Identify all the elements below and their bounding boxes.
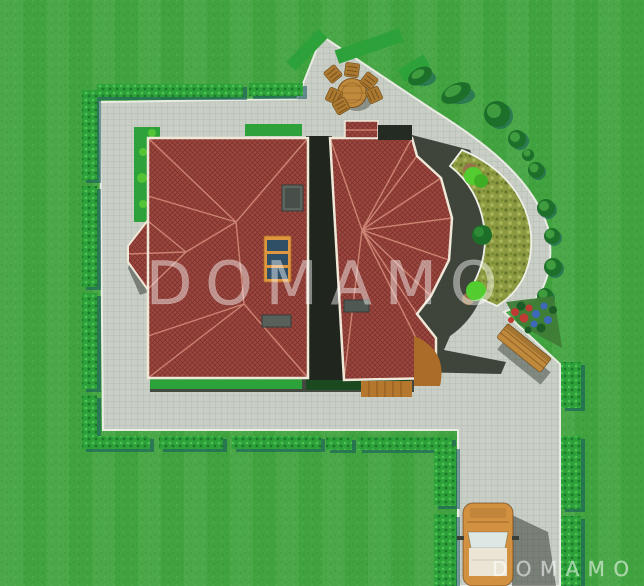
patio-chair <box>344 62 360 78</box>
chimney-cap <box>285 188 300 208</box>
house <box>128 121 452 397</box>
chimney <box>262 315 291 327</box>
car-windshield <box>468 532 508 548</box>
car-roof <box>469 548 507 576</box>
car-mirror-right <box>512 536 519 540</box>
site-plan-render: DOMAMO DOMAMO <box>0 0 644 586</box>
house-top-garden-strip <box>245 124 302 136</box>
car-mirror-left <box>457 536 464 540</box>
bright-plant <box>466 281 486 301</box>
skylight-panes <box>267 240 288 279</box>
round-bush-highlight <box>474 227 484 237</box>
flat-roof-section <box>378 125 412 140</box>
car-hood <box>470 508 506 518</box>
shrub <box>522 149 534 161</box>
skylight <box>264 236 291 282</box>
chimney <box>344 300 369 312</box>
bright-plant <box>474 174 488 188</box>
